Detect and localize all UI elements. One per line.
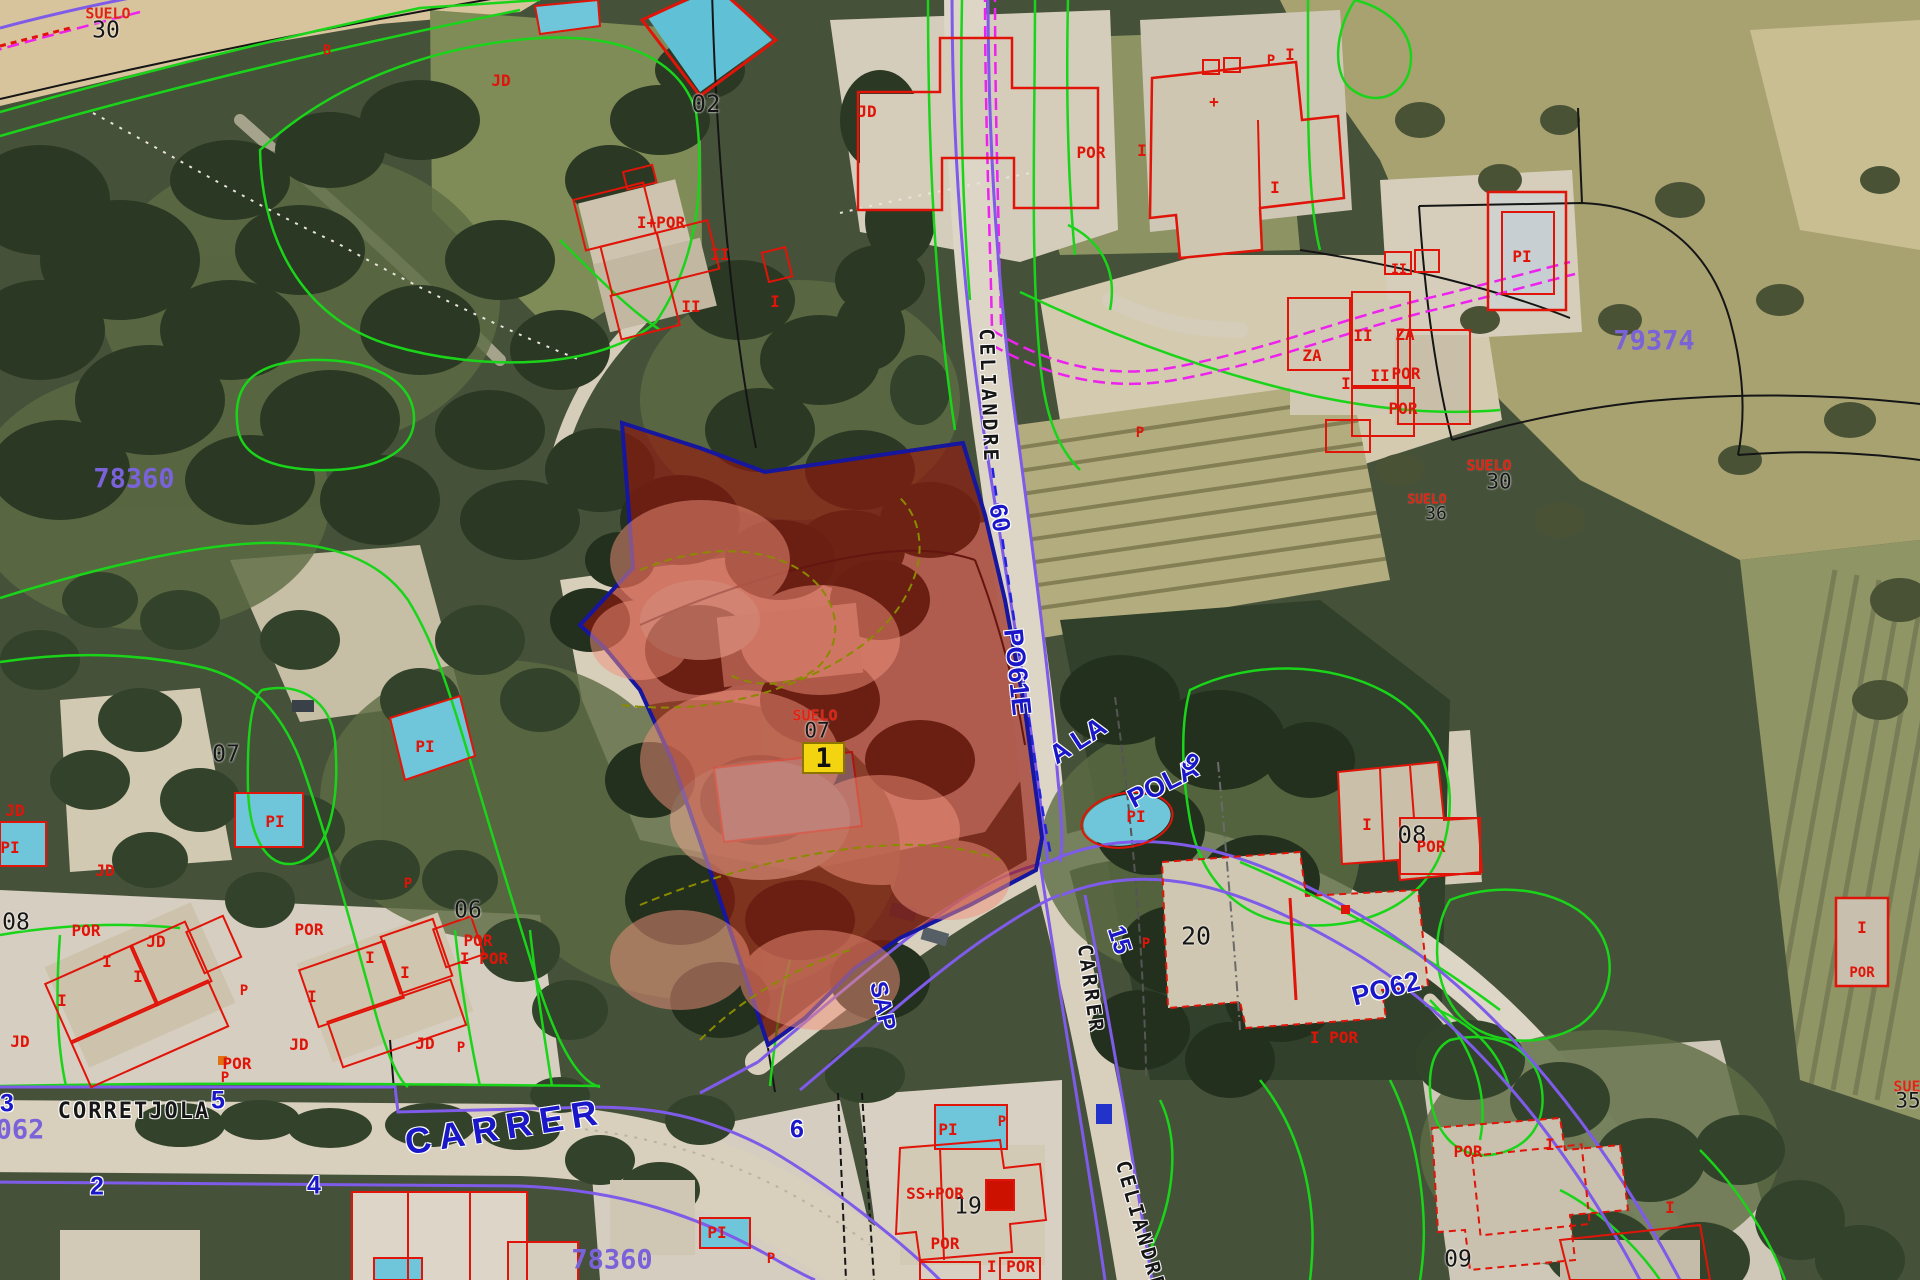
cadastral-map-viewport[interactable]: 783607937478360062CARRERPO61EA LAPOLAPO6… [0,0,1920,1280]
aerial-imagery [0,0,1920,1280]
selected-parcel-marker-number: 1 [815,743,831,774]
selected-parcel-marker[interactable]: 1 [802,742,845,774]
